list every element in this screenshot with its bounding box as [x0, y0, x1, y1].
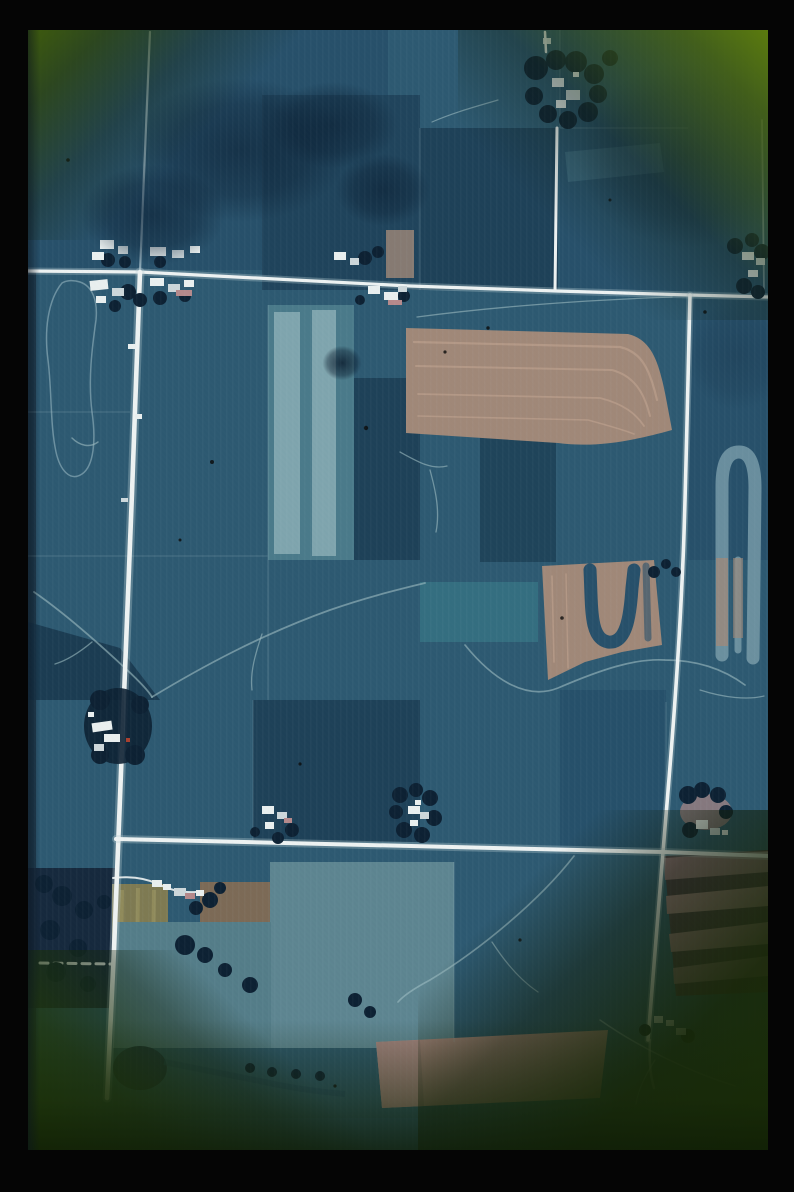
building [118, 246, 128, 254]
tree-canopy [69, 939, 87, 957]
building [748, 270, 758, 277]
tree-canopy [661, 559, 671, 569]
tree-canopy [242, 977, 258, 993]
red-object [126, 738, 130, 742]
tree-canopy [710, 787, 726, 803]
tree-canopy [197, 947, 213, 963]
tree-canopy [358, 251, 372, 265]
tree-canopy [291, 1069, 301, 1079]
tree-canopy [153, 291, 167, 305]
building [150, 278, 164, 286]
tree-canopy [214, 882, 226, 894]
building [104, 734, 120, 742]
building [384, 292, 398, 300]
tree-canopy [285, 823, 299, 837]
tree-canopy [584, 64, 604, 84]
building [654, 1016, 663, 1023]
tree-canopy [694, 782, 710, 798]
building [150, 247, 166, 256]
tree-canopy [589, 85, 607, 103]
tree-canopy [348, 993, 362, 1007]
building [666, 1020, 674, 1026]
building [172, 250, 184, 258]
building [756, 258, 765, 265]
building [722, 830, 728, 835]
tree-canopy [272, 832, 284, 844]
tree-canopy [546, 50, 566, 70]
slide-mount-frame [0, 0, 794, 1192]
building-pink-roof [185, 893, 195, 899]
building [676, 1028, 686, 1035]
tree-canopy [736, 278, 752, 294]
field-light-large [270, 862, 454, 1052]
field-pink-bottom-dark [376, 1040, 424, 1108]
tree-canopy [751, 285, 765, 299]
tree-canopy [648, 566, 660, 578]
road-marker [121, 498, 128, 502]
tree-canopy [154, 256, 166, 268]
tree-canopy [422, 790, 438, 806]
field-dark-lowermid [253, 700, 420, 842]
tree-canopy [409, 783, 423, 797]
tree-canopy [539, 105, 557, 123]
tree-canopy [372, 246, 384, 258]
tree-canopy [524, 56, 548, 80]
tree-canopy [267, 1067, 277, 1077]
tree-canopy [40, 920, 60, 940]
road-marker [128, 344, 136, 349]
scurve-dark-band2 [646, 566, 648, 638]
field-teal-lowermid [560, 690, 666, 852]
building [174, 888, 186, 896]
building [262, 806, 274, 814]
tree-canopy [189, 901, 203, 915]
building-pink-roof [176, 290, 192, 296]
road-marker [135, 414, 142, 419]
building [152, 880, 162, 887]
building [415, 800, 421, 805]
building [573, 72, 579, 77]
tree-canopy [578, 102, 598, 122]
building-pink-roof [388, 300, 402, 305]
tree-canopy [109, 300, 121, 312]
tree-canopy [525, 87, 543, 105]
tree-canopy [639, 1024, 651, 1036]
field-dark-center-north [420, 128, 558, 290]
field-strip-lane [312, 310, 336, 556]
dust-speck [443, 350, 446, 353]
tree-canopy [392, 787, 408, 803]
tree-canopy [133, 293, 147, 307]
building [742, 252, 754, 260]
tree-canopy [119, 256, 131, 268]
tree-canopy [75, 901, 93, 919]
building [277, 812, 287, 819]
tree-canopy [52, 886, 72, 906]
tree-canopy [175, 935, 195, 955]
building [566, 90, 580, 100]
building [410, 820, 418, 826]
tree-canopy [682, 822, 698, 838]
tree-canopy [80, 976, 96, 992]
building-pink-roof [284, 818, 292, 823]
tree-canopy [559, 111, 577, 129]
dust-speck [364, 426, 368, 430]
building [112, 288, 124, 296]
building [90, 279, 109, 291]
field-tan-narrow [716, 558, 728, 646]
tree-canopy [250, 827, 260, 837]
tree-canopy [727, 238, 743, 254]
dust-speck [560, 616, 564, 620]
tree-canopy [355, 295, 365, 305]
building [163, 884, 171, 890]
tree-canopy [131, 696, 149, 714]
pond [113, 1046, 167, 1090]
building [710, 828, 720, 835]
film-area [28, 30, 768, 1150]
dust-speck [486, 326, 489, 329]
dust-speck [66, 158, 70, 162]
building [96, 296, 106, 303]
tree-canopy [218, 963, 232, 977]
field-strip-lane [274, 312, 300, 554]
dust-speck [333, 1084, 336, 1087]
road-vertical-center[interactable] [555, 128, 557, 291]
field-tan-strip-small [386, 230, 414, 278]
tree-canopy [719, 805, 733, 819]
building [196, 890, 204, 896]
tree-canopy [389, 805, 403, 819]
dust-speck [179, 539, 182, 542]
tree-canopy [396, 822, 412, 838]
building [190, 246, 200, 253]
tree-canopy [315, 1071, 325, 1081]
building [350, 258, 359, 265]
dust-speck [298, 762, 301, 765]
tree-canopy [364, 1006, 376, 1018]
building [184, 280, 194, 287]
field-tan-narrow [733, 558, 743, 638]
building [100, 240, 114, 249]
tree-canopy [565, 51, 587, 73]
tree-canopy [414, 827, 430, 843]
field-dark-mid2 [480, 436, 556, 562]
tree-canopy [671, 567, 681, 577]
dust-speck [609, 199, 612, 202]
dust-speck [210, 460, 214, 464]
building [556, 100, 566, 108]
building [334, 252, 346, 260]
dust-speck [703, 310, 707, 314]
building [543, 38, 551, 44]
tree-canopy [745, 233, 759, 247]
tree-canopy [125, 745, 145, 765]
tree-canopy [97, 895, 111, 909]
dust-speck [518, 938, 521, 941]
building [420, 812, 429, 819]
building [398, 286, 407, 292]
aerial-photo [28, 30, 768, 1150]
building [552, 78, 564, 87]
tree-canopy [245, 1063, 255, 1073]
building [94, 744, 104, 751]
tree-canopy [35, 875, 53, 893]
field-light-mid [420, 582, 538, 642]
farmstead-midleft [84, 688, 152, 765]
building [408, 806, 420, 814]
tree-canopy [602, 50, 618, 66]
building [92, 252, 104, 260]
building [368, 286, 380, 294]
tree-canopy [46, 962, 66, 982]
tree-canopy [90, 690, 110, 710]
building [88, 712, 94, 717]
building [696, 820, 708, 829]
building [265, 822, 274, 829]
tree-canopy [202, 892, 218, 908]
